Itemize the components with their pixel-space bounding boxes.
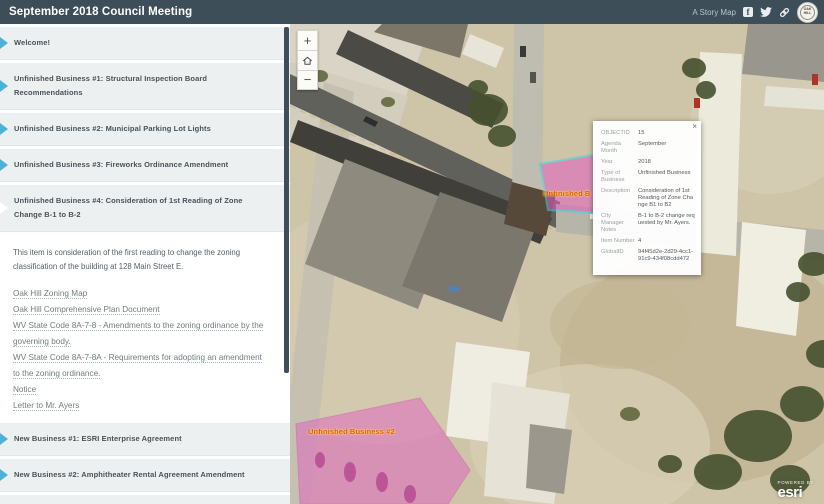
field-value: 2018: [638, 159, 695, 166]
popup-field: Year 2018: [601, 159, 695, 166]
zoom-out-button[interactable]: −: [297, 70, 318, 90]
field-value: 15: [638, 130, 695, 137]
sidebar: Welcome! Unfinished Business #1: Structu…: [0, 24, 290, 504]
field-value: 4: [638, 238, 695, 245]
field-label: OBJECTID: [601, 130, 638, 137]
link-comprehensive-plan[interactable]: Oak Hill Comprehensive Plan Document: [13, 305, 160, 315]
link-wv-code-8a-7-8a[interactable]: WV State Code 8A-7-8A - Requirements for…: [13, 353, 262, 379]
oak-hill-logo-ring: OAKHILL: [800, 5, 815, 20]
chevron-right-icon: [0, 159, 8, 171]
link-notice[interactable]: Notice: [13, 385, 36, 395]
sidebar-item-unfinished-2[interactable]: Unfinished Business #2: Municipal Parkin…: [0, 113, 290, 146]
popup-field: Description Consideration of 1st Reading…: [601, 188, 695, 209]
chevron-right-icon: [0, 123, 8, 135]
feature-popup: × OBJECTID 15 Agenda Month September Yea…: [593, 121, 701, 275]
field-label: GlobalID: [601, 249, 638, 263]
active-item-content: This item is consideration of the first …: [0, 235, 290, 423]
oak-hill-logo[interactable]: OAKHILL: [797, 2, 818, 23]
field-label: Agenda Month: [601, 141, 638, 155]
twitter-icon[interactable]: [760, 7, 772, 17]
popup-field: Type of Business Unfinished Business: [601, 170, 695, 184]
sidebar-item-unfinished-3[interactable]: Unfinished Business #3: Fireworks Ordina…: [0, 149, 290, 182]
esri-logo: esri: [777, 484, 802, 501]
story-map-label: A Story Map: [692, 8, 736, 17]
item-description: This item is consideration of the first …: [13, 246, 271, 274]
popup-field: OBJECTID 15: [601, 130, 695, 137]
popup-field: Item Number 4: [601, 238, 695, 245]
link-icon[interactable]: [779, 7, 790, 18]
chevron-right-icon: [0, 202, 8, 214]
parcel-label-unfinished-business-2: Unfinished Business #2: [308, 427, 395, 436]
field-value: Consideration of 1st Reading of Zone Cha…: [638, 188, 695, 209]
field-label: Item Number: [601, 238, 638, 245]
map-controls: + −: [297, 30, 318, 90]
chevron-right-icon: [0, 469, 8, 481]
close-icon[interactable]: ×: [692, 123, 697, 131]
sidebar-item-new-2[interactable]: New Business #2: Amphitheater Rental Agr…: [0, 459, 290, 492]
zoom-in-button[interactable]: +: [297, 30, 318, 50]
app-header: September 2018 Council Meeting A Story M…: [0, 0, 824, 24]
facebook-icon[interactable]: f: [743, 7, 753, 17]
link-wv-code-8a-7-8[interactable]: WV State Code 8A-7-8 - Amendments to the…: [13, 321, 263, 347]
popup-field: GlobalID 94f45d2e-2d29-4cc1-91c9-434f08c…: [601, 249, 695, 263]
popup-field: City Manager Notes B-1 to B-2 change req…: [601, 213, 695, 234]
sidebar-item-unfinished-4[interactable]: Unfinished Business #4: Consideration of…: [0, 185, 290, 232]
chevron-right-icon: [0, 80, 8, 92]
sidebar-item-welcome[interactable]: Welcome!: [0, 27, 290, 60]
field-value: B-1 to B-2 change requested by Mr. Ayers…: [638, 213, 695, 234]
sidebar-scrollbar[interactable]: [284, 27, 289, 373]
field-label: Type of Business: [601, 170, 638, 184]
header-right: A Story Map f OAKHILL: [692, 2, 818, 23]
field-value: September: [638, 141, 695, 155]
esri-attribution: POWERED BY esri: [777, 480, 814, 502]
powered-by-label: POWERED BY: [777, 480, 814, 485]
sidebar-item-label: Unfinished Business #4: Consideration of…: [14, 194, 266, 222]
field-label: Description: [601, 188, 638, 209]
sidebar-item-label: New Business #1: ESRI Enterprise Agreeme…: [14, 432, 182, 446]
popup-field: Agenda Month September: [601, 141, 695, 155]
sidebar-item-new-1[interactable]: New Business #1: ESRI Enterprise Agreeme…: [0, 423, 290, 456]
field-value: 94f45d2e-2d29-4cc1-91c9-434f08cdd472: [638, 249, 695, 263]
chevron-right-icon: [0, 433, 8, 445]
sidebar-item-label: Unfinished Business #1: Structural Inspe…: [14, 72, 266, 100]
page-title: September 2018 Council Meeting: [9, 6, 192, 18]
sidebar-item-label: Welcome!: [14, 36, 50, 50]
parcel-label-unfinished-business-4: Unfinished B: [543, 189, 590, 198]
sidebar-item-unfinished-1[interactable]: Unfinished Business #1: Structural Inspe…: [0, 63, 290, 110]
home-button[interactable]: [297, 50, 318, 70]
map-canvas[interactable]: Unfinished B Unfinished Business #2 × OB…: [290, 24, 824, 504]
sidebar-item-label: New Business #2: Amphitheater Rental Agr…: [14, 468, 245, 482]
field-value: Unfinished Business: [638, 170, 695, 184]
link-letter-ayers[interactable]: Letter to Mr. Ayers: [13, 401, 79, 411]
storymap-app: September 2018 Council Meeting A Story M…: [0, 0, 824, 504]
sidebar-item-new-3[interactable]: New Business #3: Resolution of Support o…: [0, 495, 290, 504]
logo-text-bottom: HILL: [804, 11, 812, 15]
link-zoning-map[interactable]: Oak Hill Zoning Map: [13, 289, 87, 299]
home-icon: [301, 54, 314, 67]
field-label: City Manager Notes: [601, 213, 638, 234]
field-label: Year: [601, 159, 638, 166]
chevron-right-icon: [0, 37, 8, 49]
sidebar-item-label: Unfinished Business #2: Municipal Parkin…: [14, 122, 211, 136]
sidebar-item-label: Unfinished Business #3: Fireworks Ordina…: [14, 158, 228, 172]
